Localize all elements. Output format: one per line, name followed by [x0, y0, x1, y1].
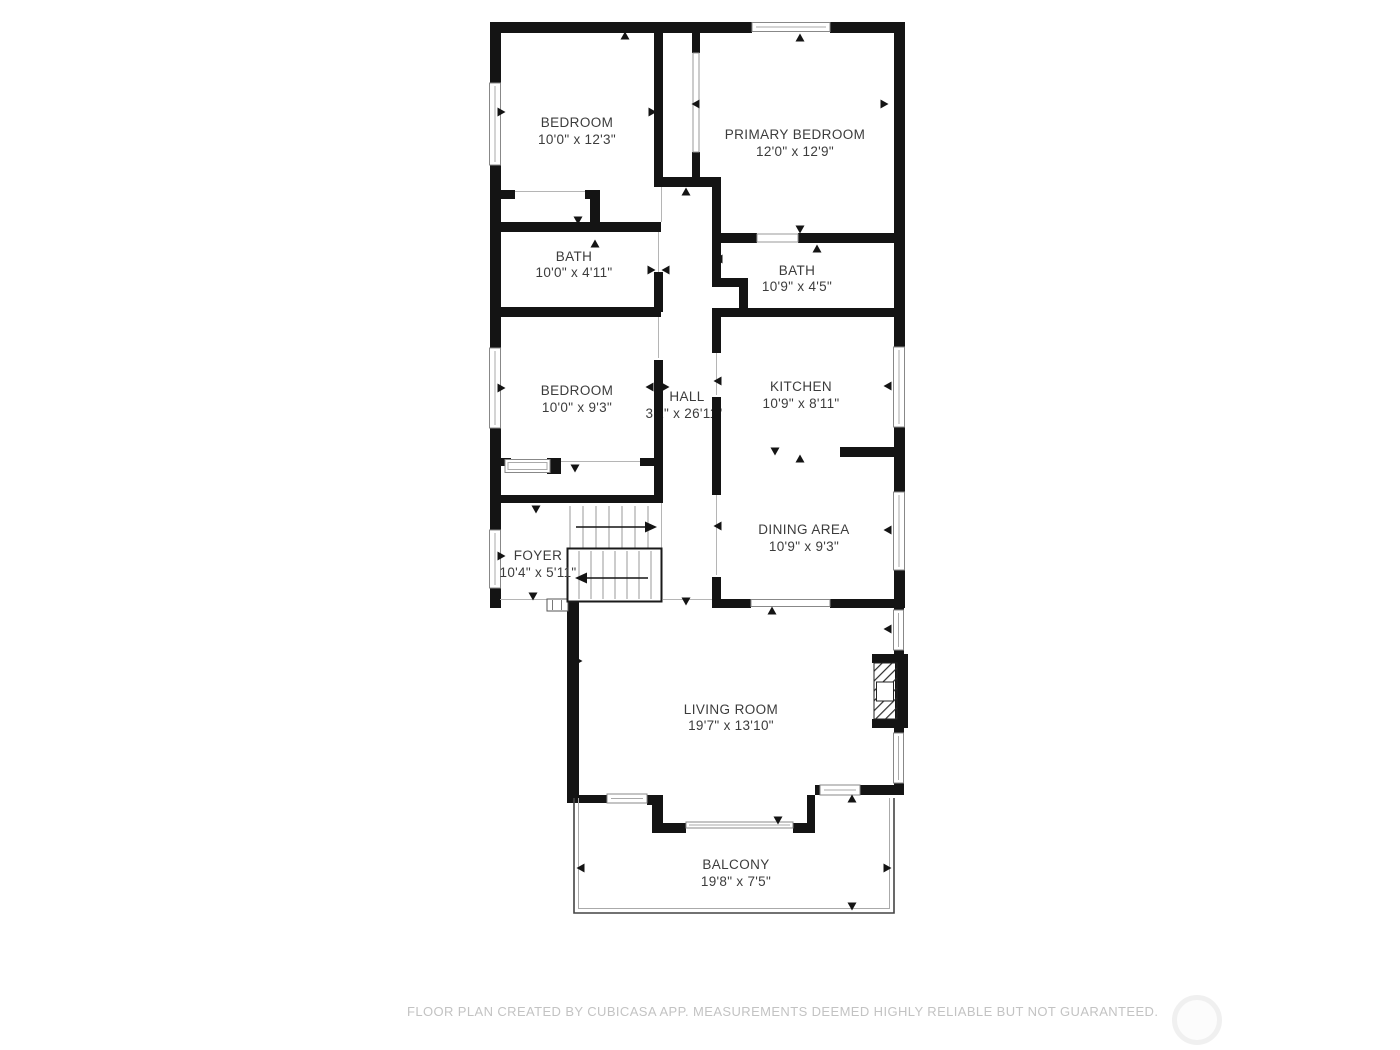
primary-bedroom-name: PRIMARY BEDROOM: [725, 127, 866, 142]
primary-bedroom-dims: 12'0" x 12'9": [756, 144, 834, 159]
room-label-kitchen: KITCHEN 10'9" x 8'11": [763, 379, 840, 411]
living-room-name: LIVING ROOM: [684, 702, 778, 717]
dining-area-dims: 10'9" x 9'3": [769, 539, 839, 554]
kitchen-name: KITCHEN: [770, 379, 832, 394]
balcony-railing: [574, 798, 894, 913]
room-label-primary-bedroom: PRIMARY BEDROOM 12'0" x 12'9": [725, 127, 866, 159]
foyer-name: FOYER: [514, 548, 563, 563]
room-label-bath-right: BATH 10'9" x 4'5": [762, 263, 832, 294]
hall-name: HALL: [669, 389, 704, 404]
front-door: [547, 599, 568, 611]
kitchen-dims: 10'9" x 8'11": [763, 396, 840, 411]
room-label-bedroom-top: BEDROOM 10'0" x 12'3": [538, 115, 616, 147]
room-label-dining-area: DINING AREA 10'9" x 9'3": [758, 522, 849, 554]
bath-left-name: BATH: [556, 249, 593, 264]
floor-plan-page: HALL 3'2" x 26'11": [0, 0, 1400, 1050]
balcony-name: BALCONY: [702, 857, 769, 872]
room-label-bedroom-lower: BEDROOM 10'0" x 9'3": [541, 383, 614, 415]
room-label-foyer: FOYER 10'4" x 5'11": [500, 548, 577, 580]
foyer-closet: [505, 460, 550, 473]
bedroom-top-name: BEDROOM: [541, 115, 614, 130]
fireplace: [872, 654, 908, 728]
disclaimer-text: FLOOR PLAN CREATED BY CUBICASA APP. MEAS…: [407, 1004, 1158, 1019]
room-label-balcony: BALCONY 19'8" x 7'5": [701, 857, 771, 889]
bath-left-dims: 10'0" x 4'11": [536, 265, 613, 280]
dining-area-name: DINING AREA: [758, 522, 849, 537]
floor-plan-canvas: HALL 3'2" x 26'11": [0, 0, 1400, 1050]
room-label-living-room: LIVING ROOM 19'7" x 13'10": [684, 702, 778, 733]
compass-watermark: [1172, 995, 1222, 1045]
bath-right-dims: 10'9" x 4'5": [762, 279, 832, 294]
bedroom-lower-name: BEDROOM: [541, 383, 614, 398]
foyer-dims: 10'4" x 5'11": [500, 565, 577, 580]
bath-right-name: BATH: [779, 263, 816, 278]
balcony-dims: 19'8" x 7'5": [701, 874, 771, 889]
living-room-dims: 19'7" x 13'10": [688, 718, 774, 733]
bedroom-lower-dims: 10'0" x 9'3": [542, 400, 612, 415]
room-label-bath-left: BATH 10'0" x 4'11": [536, 249, 613, 280]
bedroom-top-dims: 10'0" x 12'3": [538, 132, 616, 147]
stairs: [568, 506, 663, 602]
